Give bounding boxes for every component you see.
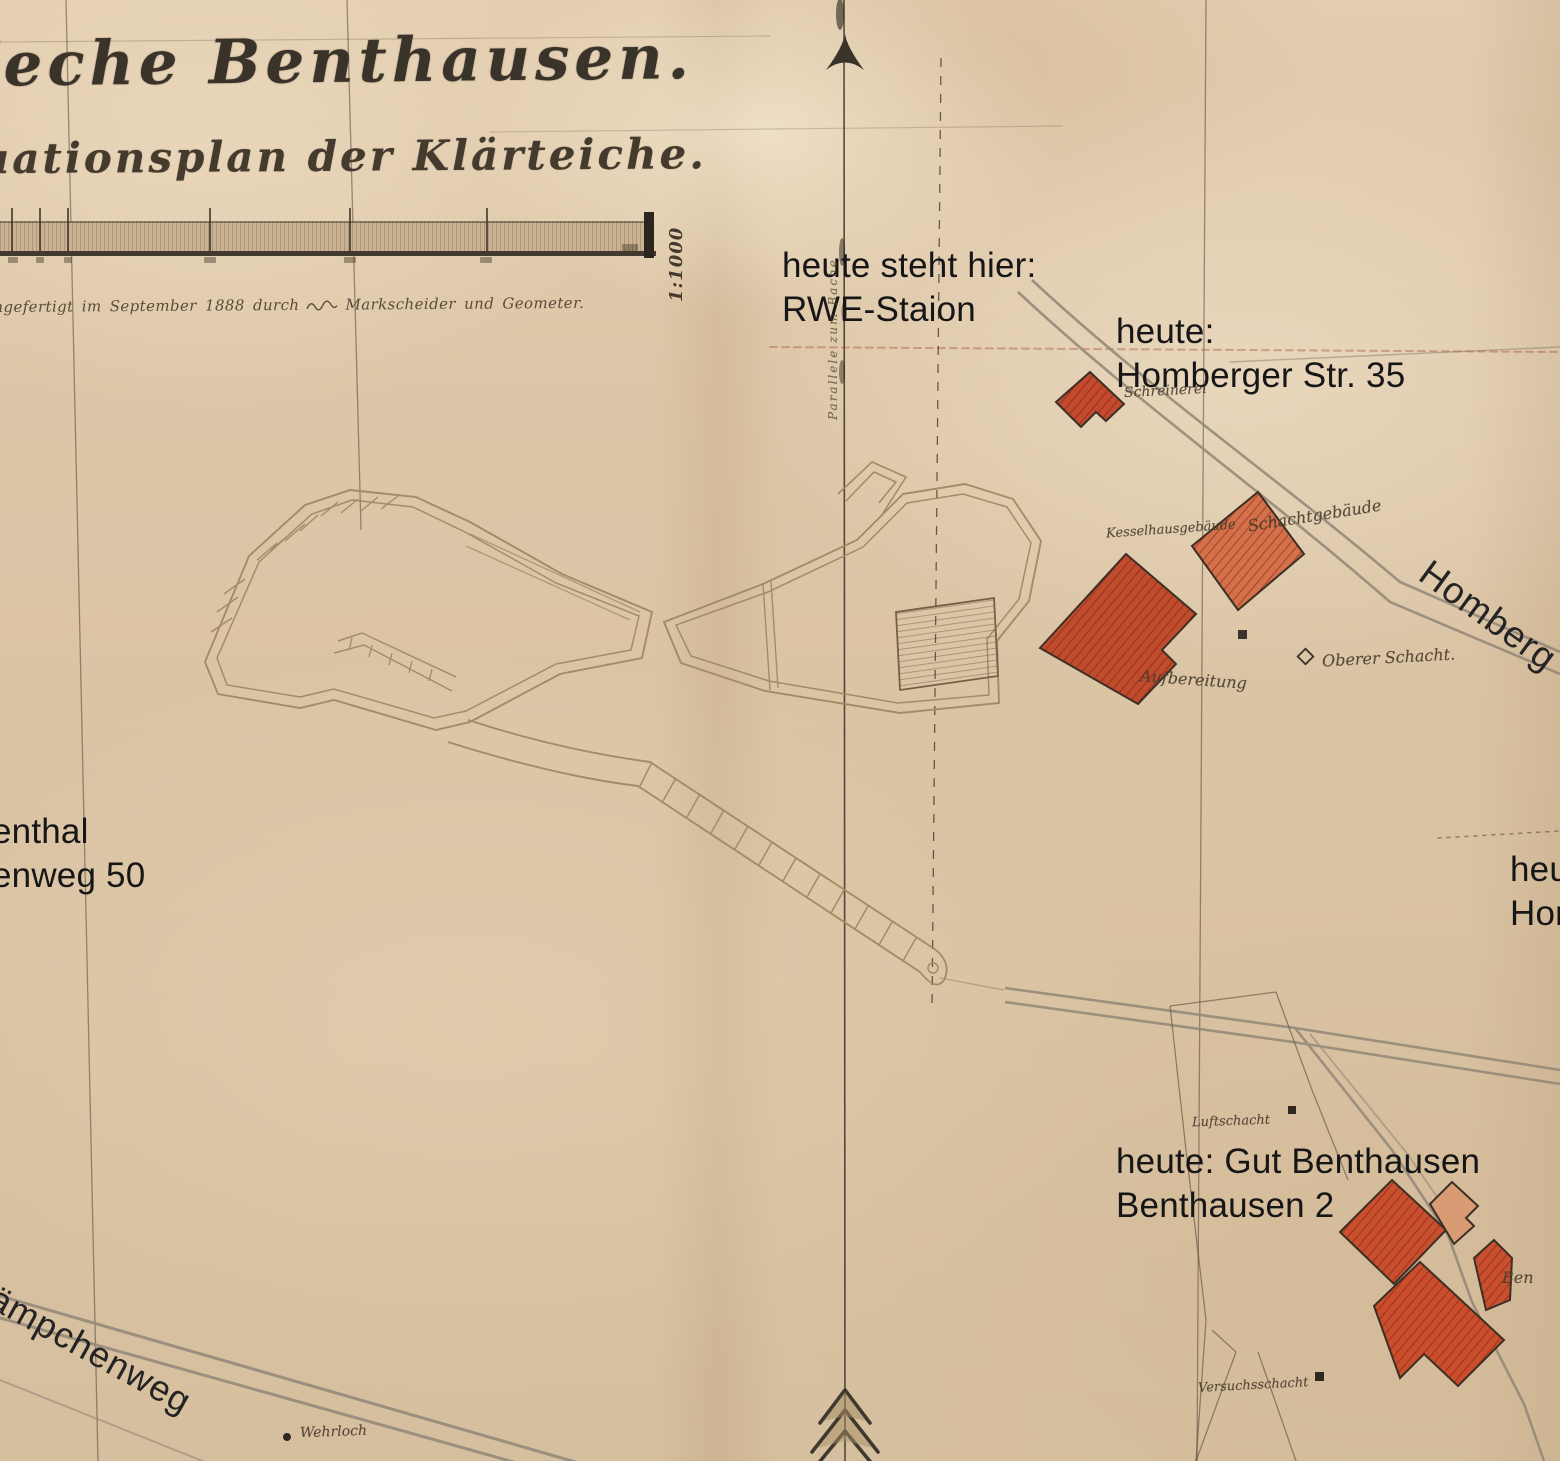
signature-scribble-icon <box>305 299 339 313</box>
annotation-line: enthal <box>0 810 145 854</box>
annotation-gut-benthausen: heute: Gut Benthausen Benthausen 2 <box>1116 1140 1480 1228</box>
pond-hatched-basin <box>896 598 998 690</box>
map-subtitle: Situationsplan der Klärteiche. <box>0 129 707 184</box>
annotation-line: heute: Gut Benthausen <box>1116 1140 1480 1184</box>
credit-right: Markscheider und Geometer. <box>345 294 584 314</box>
klaerteiche-ponds <box>205 462 1041 990</box>
north-arrow-icon <box>826 34 864 70</box>
shaft-symbols <box>283 649 1324 1441</box>
oberer-schacht-diamond-icon <box>1298 649 1314 665</box>
label-luftschacht: Luftschacht <box>1192 1113 1270 1131</box>
annotation-right-edge: heu Hor <box>1510 848 1560 936</box>
label-benthausen-cut: Ben <box>1502 1268 1534 1287</box>
annotation-line: heute: <box>1116 310 1405 354</box>
roads <box>0 280 1560 1461</box>
scale-bar <box>0 208 656 263</box>
annotation-left-edge: enthal enweg 50 <box>0 810 145 898</box>
label-meridian-note: Parallele zum Bache <box>826 258 840 420</box>
pond-channel-outline <box>448 720 936 972</box>
annotation-line: enweg 50 <box>0 854 145 898</box>
historic-mine-map: Zeche Benthausen. Situationsplan der Klä… <box>0 0 1560 1461</box>
meridian-line <box>803 0 941 1461</box>
wehrloch-dot-icon <box>283 1433 291 1441</box>
credit-left: angefertigt im September 1888 durch <box>0 296 299 316</box>
luftschacht-square-icon <box>1288 1106 1296 1114</box>
annotation-line: Benthausen 2 <box>1116 1184 1480 1228</box>
annotation-rwe-station: heute steht hier: RWE-Staion <box>782 244 1036 332</box>
label-wehrloch: Wehrloch <box>300 1423 368 1441</box>
annotation-line: Hor <box>1510 892 1560 936</box>
pond-west-outline <box>205 490 652 730</box>
fold-lines <box>66 0 1206 1461</box>
road-bottom <box>1005 988 1560 1070</box>
map-linework <box>0 0 1560 1461</box>
annotation-line: RWE-Staion <box>782 288 1036 332</box>
annotation-line: heu <box>1510 848 1560 892</box>
building-small-square <box>1238 630 1247 639</box>
map-title: Zeche Benthausen. <box>0 22 694 101</box>
versuchsschacht-square-icon <box>1315 1372 1324 1381</box>
scale-ratio-label: 1:1000 <box>666 222 687 302</box>
annotation-line: heute steht hier: <box>782 244 1036 288</box>
